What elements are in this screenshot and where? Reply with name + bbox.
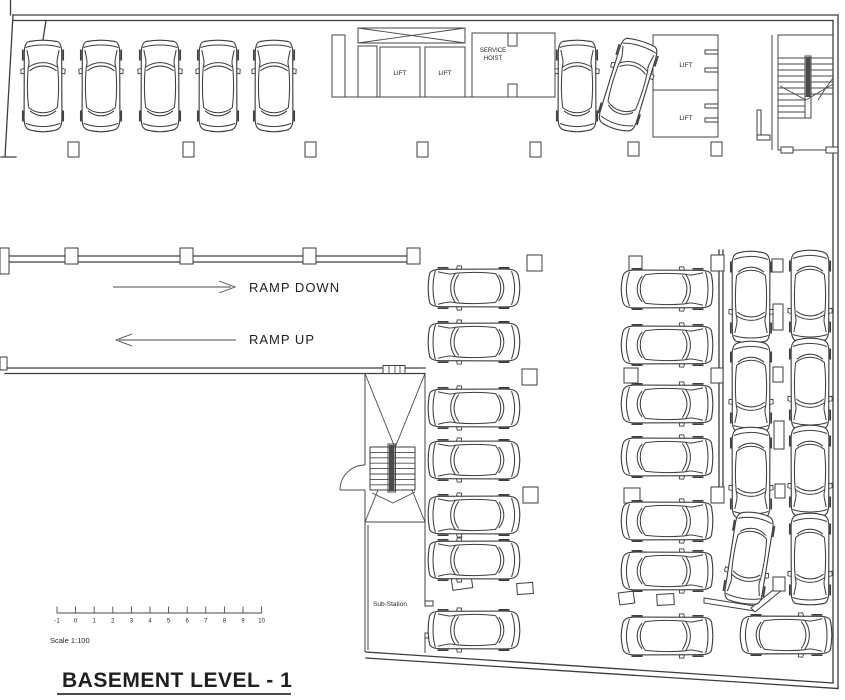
scale-label: Scale 1:100 — [50, 636, 90, 645]
ramp-up-label: RAMP UP — [249, 332, 315, 347]
column — [417, 142, 428, 157]
column — [522, 369, 537, 385]
service-hoist-room — [472, 33, 555, 97]
parked-car — [196, 40, 240, 132]
column — [781, 147, 793, 153]
column — [624, 368, 638, 383]
column — [407, 248, 420, 264]
scale-bar: -1012345678910 Scale 1:100 — [50, 607, 266, 646]
column — [517, 582, 534, 594]
column — [711, 487, 724, 503]
parked-car — [428, 438, 520, 482]
scale-tick-label: 10 — [258, 619, 265, 625]
ramp-annotations: RAMP DOWN RAMP UP — [113, 280, 340, 347]
column — [773, 367, 783, 382]
lift-core-block: LIFT LIFT SERVICE HOIST — [332, 28, 555, 97]
parked-car — [21, 40, 65, 132]
parked-car — [428, 608, 520, 652]
parked-car — [593, 35, 662, 136]
scale-tick-label: -1 — [54, 619, 60, 625]
column — [523, 487, 538, 503]
parked-car — [621, 435, 713, 479]
stair-flight — [370, 444, 415, 503]
column — [530, 142, 541, 157]
ramp-down-label: RAMP DOWN — [249, 280, 340, 295]
parked-car — [621, 323, 713, 367]
scale-tick-label: 4 — [148, 619, 152, 625]
parked-car — [621, 499, 713, 543]
scale-tick-label: 3 — [130, 619, 134, 625]
parked-car — [428, 320, 520, 364]
scale-tick-label: 6 — [186, 619, 190, 625]
sub-station-room: Sub-Station — [365, 522, 433, 653]
parked-car — [621, 614, 713, 658]
parked-car — [621, 549, 713, 593]
parked-car — [729, 251, 773, 343]
basement-floor-plan: LIFT LIFT SERVICE HOIST LIFT LIFT — [0, 0, 845, 700]
column — [628, 142, 639, 156]
shaft-room — [332, 35, 345, 97]
parked-car — [729, 427, 773, 519]
column — [773, 577, 785, 591]
lift-label: LIFT — [393, 70, 406, 77]
column — [68, 142, 79, 157]
parked-car — [428, 538, 520, 582]
staircase-upper-right — [772, 35, 833, 150]
parked-cars — [21, 35, 832, 658]
column — [757, 135, 770, 140]
parked-car — [788, 425, 832, 517]
sub-station-label: Sub-Station — [373, 601, 407, 608]
parked-car — [138, 40, 182, 132]
parked-car — [788, 513, 832, 605]
column — [773, 304, 783, 330]
staircase-middle-block — [340, 366, 425, 523]
column — [305, 142, 316, 157]
parked-car — [428, 493, 520, 537]
column — [757, 110, 761, 138]
scale-tick-label: 9 — [241, 619, 245, 625]
service-hoist-label-line2: HOIST — [484, 56, 503, 62]
parked-car — [621, 382, 713, 426]
lift-label: LIFT — [438, 70, 451, 77]
right-lift-block: LIFT LIFT — [653, 35, 718, 137]
column — [775, 484, 785, 498]
scale-tick-label: 0 — [74, 619, 78, 625]
column — [183, 142, 194, 157]
scale-tick-label: 2 — [111, 619, 115, 625]
column — [180, 248, 193, 264]
column — [774, 421, 784, 449]
column — [65, 248, 78, 264]
shaft-room — [358, 46, 377, 97]
column — [0, 248, 9, 274]
column — [711, 368, 723, 383]
lift-label: LIFT — [679, 115, 692, 122]
scale-tick-label: 7 — [204, 619, 208, 625]
column — [711, 255, 724, 271]
ramp-walls — [2, 256, 425, 374]
column — [303, 248, 316, 264]
column — [618, 591, 635, 605]
parked-car — [428, 266, 520, 310]
parked-car — [720, 509, 778, 606]
parked-car — [555, 40, 599, 132]
column — [826, 147, 838, 153]
scale-tick-label: 1 — [93, 619, 97, 625]
parked-car — [729, 341, 773, 433]
column — [772, 259, 783, 272]
column — [0, 357, 7, 370]
scale-tick-label: 8 — [223, 619, 227, 625]
column — [657, 594, 675, 606]
service-hoist-label-line1: SERVICE — [480, 48, 506, 54]
drawing-title: BASEMENT LEVEL - 1 — [62, 669, 292, 692]
column — [527, 255, 542, 271]
lift-label: LIFT — [679, 62, 692, 69]
parked-car — [252, 40, 296, 132]
door-swing — [340, 465, 365, 490]
parked-car — [788, 338, 832, 430]
floor-plan-canvas: LIFT LIFT SERVICE HOIST LIFT LIFT — [0, 0, 845, 700]
parked-car — [740, 613, 832, 657]
title-block: BASEMENT LEVEL - 1 — [57, 669, 292, 694]
parked-car — [788, 250, 832, 342]
column — [711, 142, 722, 156]
parked-car — [621, 267, 713, 311]
scale-tick-label: 5 — [167, 619, 171, 625]
parked-car — [428, 386, 520, 430]
parked-car — [79, 40, 123, 132]
